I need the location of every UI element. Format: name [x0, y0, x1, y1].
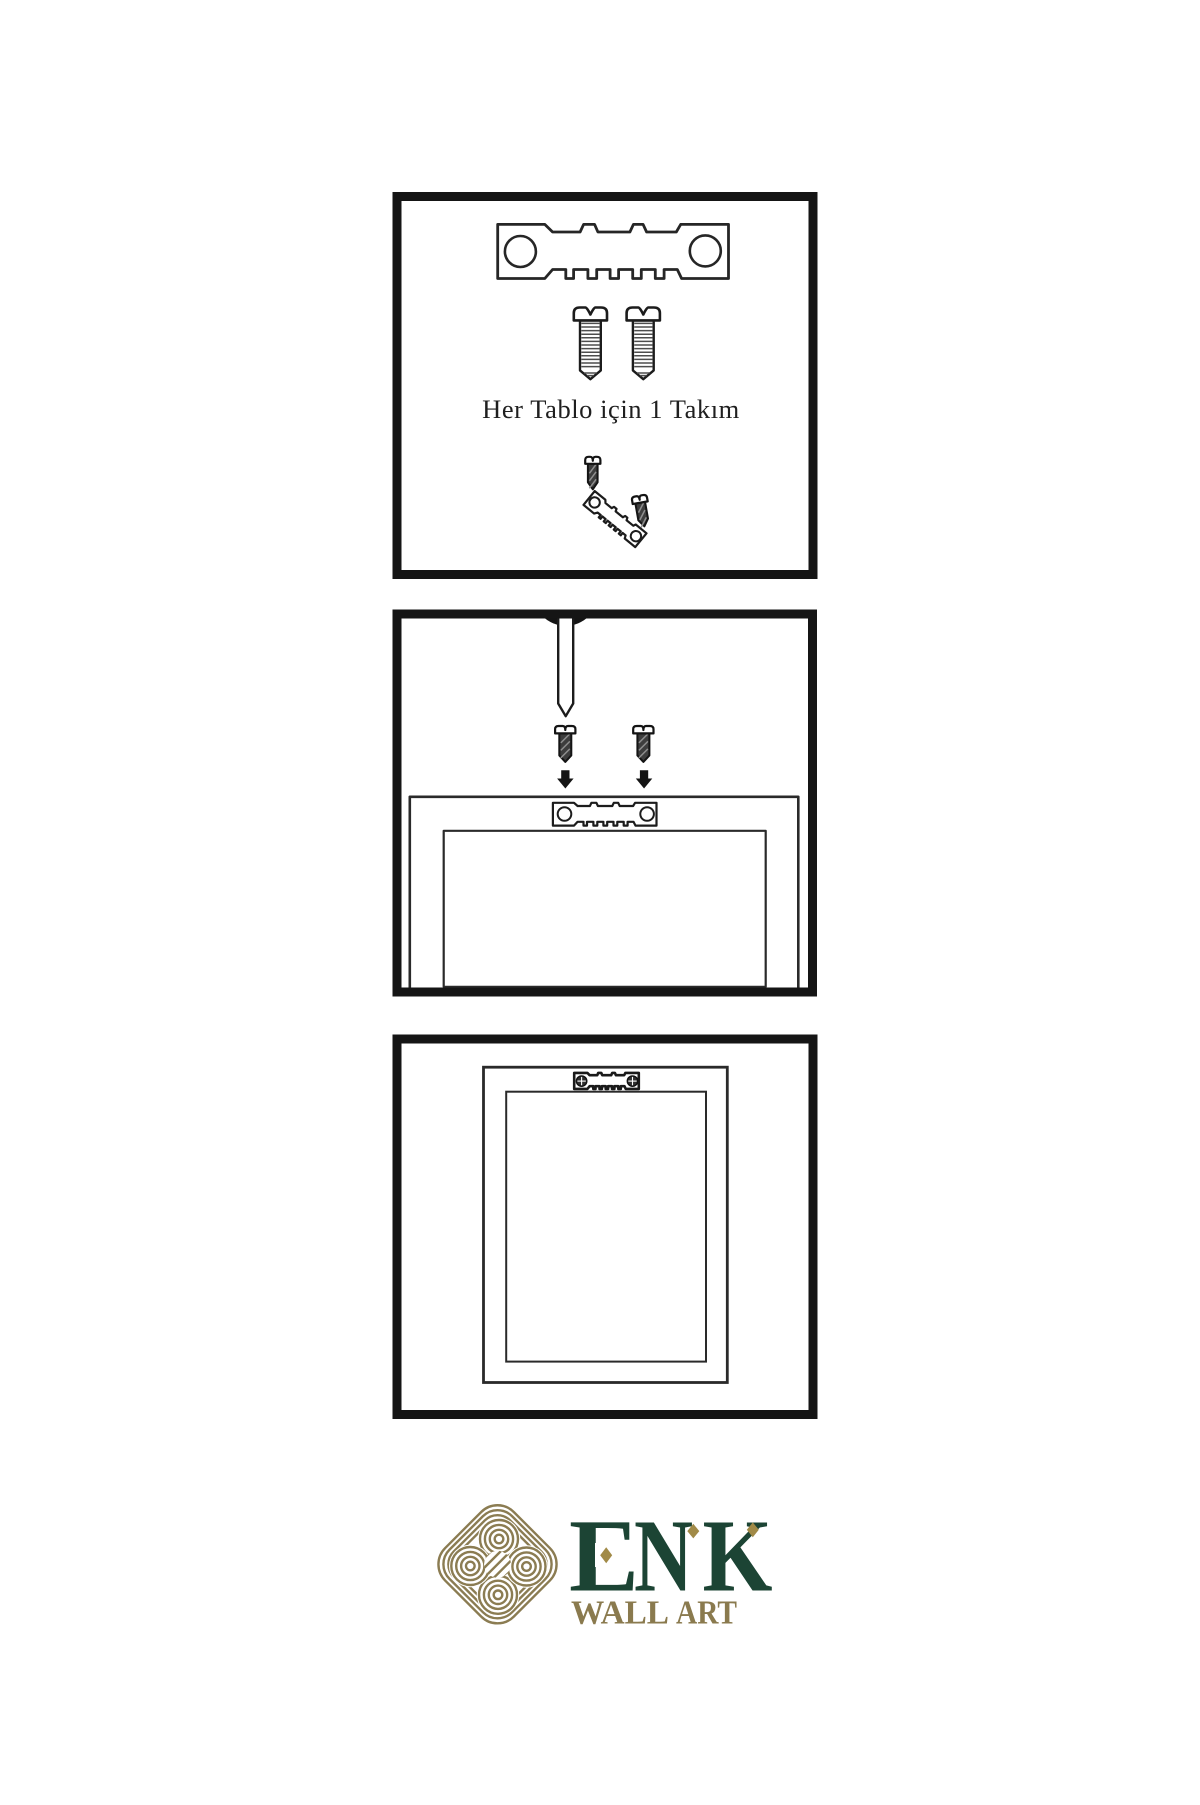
svg-text:WALL: WALL	[571, 1595, 669, 1632]
svg-text:Her Tablo için 1 Takım: Her Tablo için 1 Takım	[482, 394, 740, 424]
svg-text:ART: ART	[676, 1595, 737, 1632]
